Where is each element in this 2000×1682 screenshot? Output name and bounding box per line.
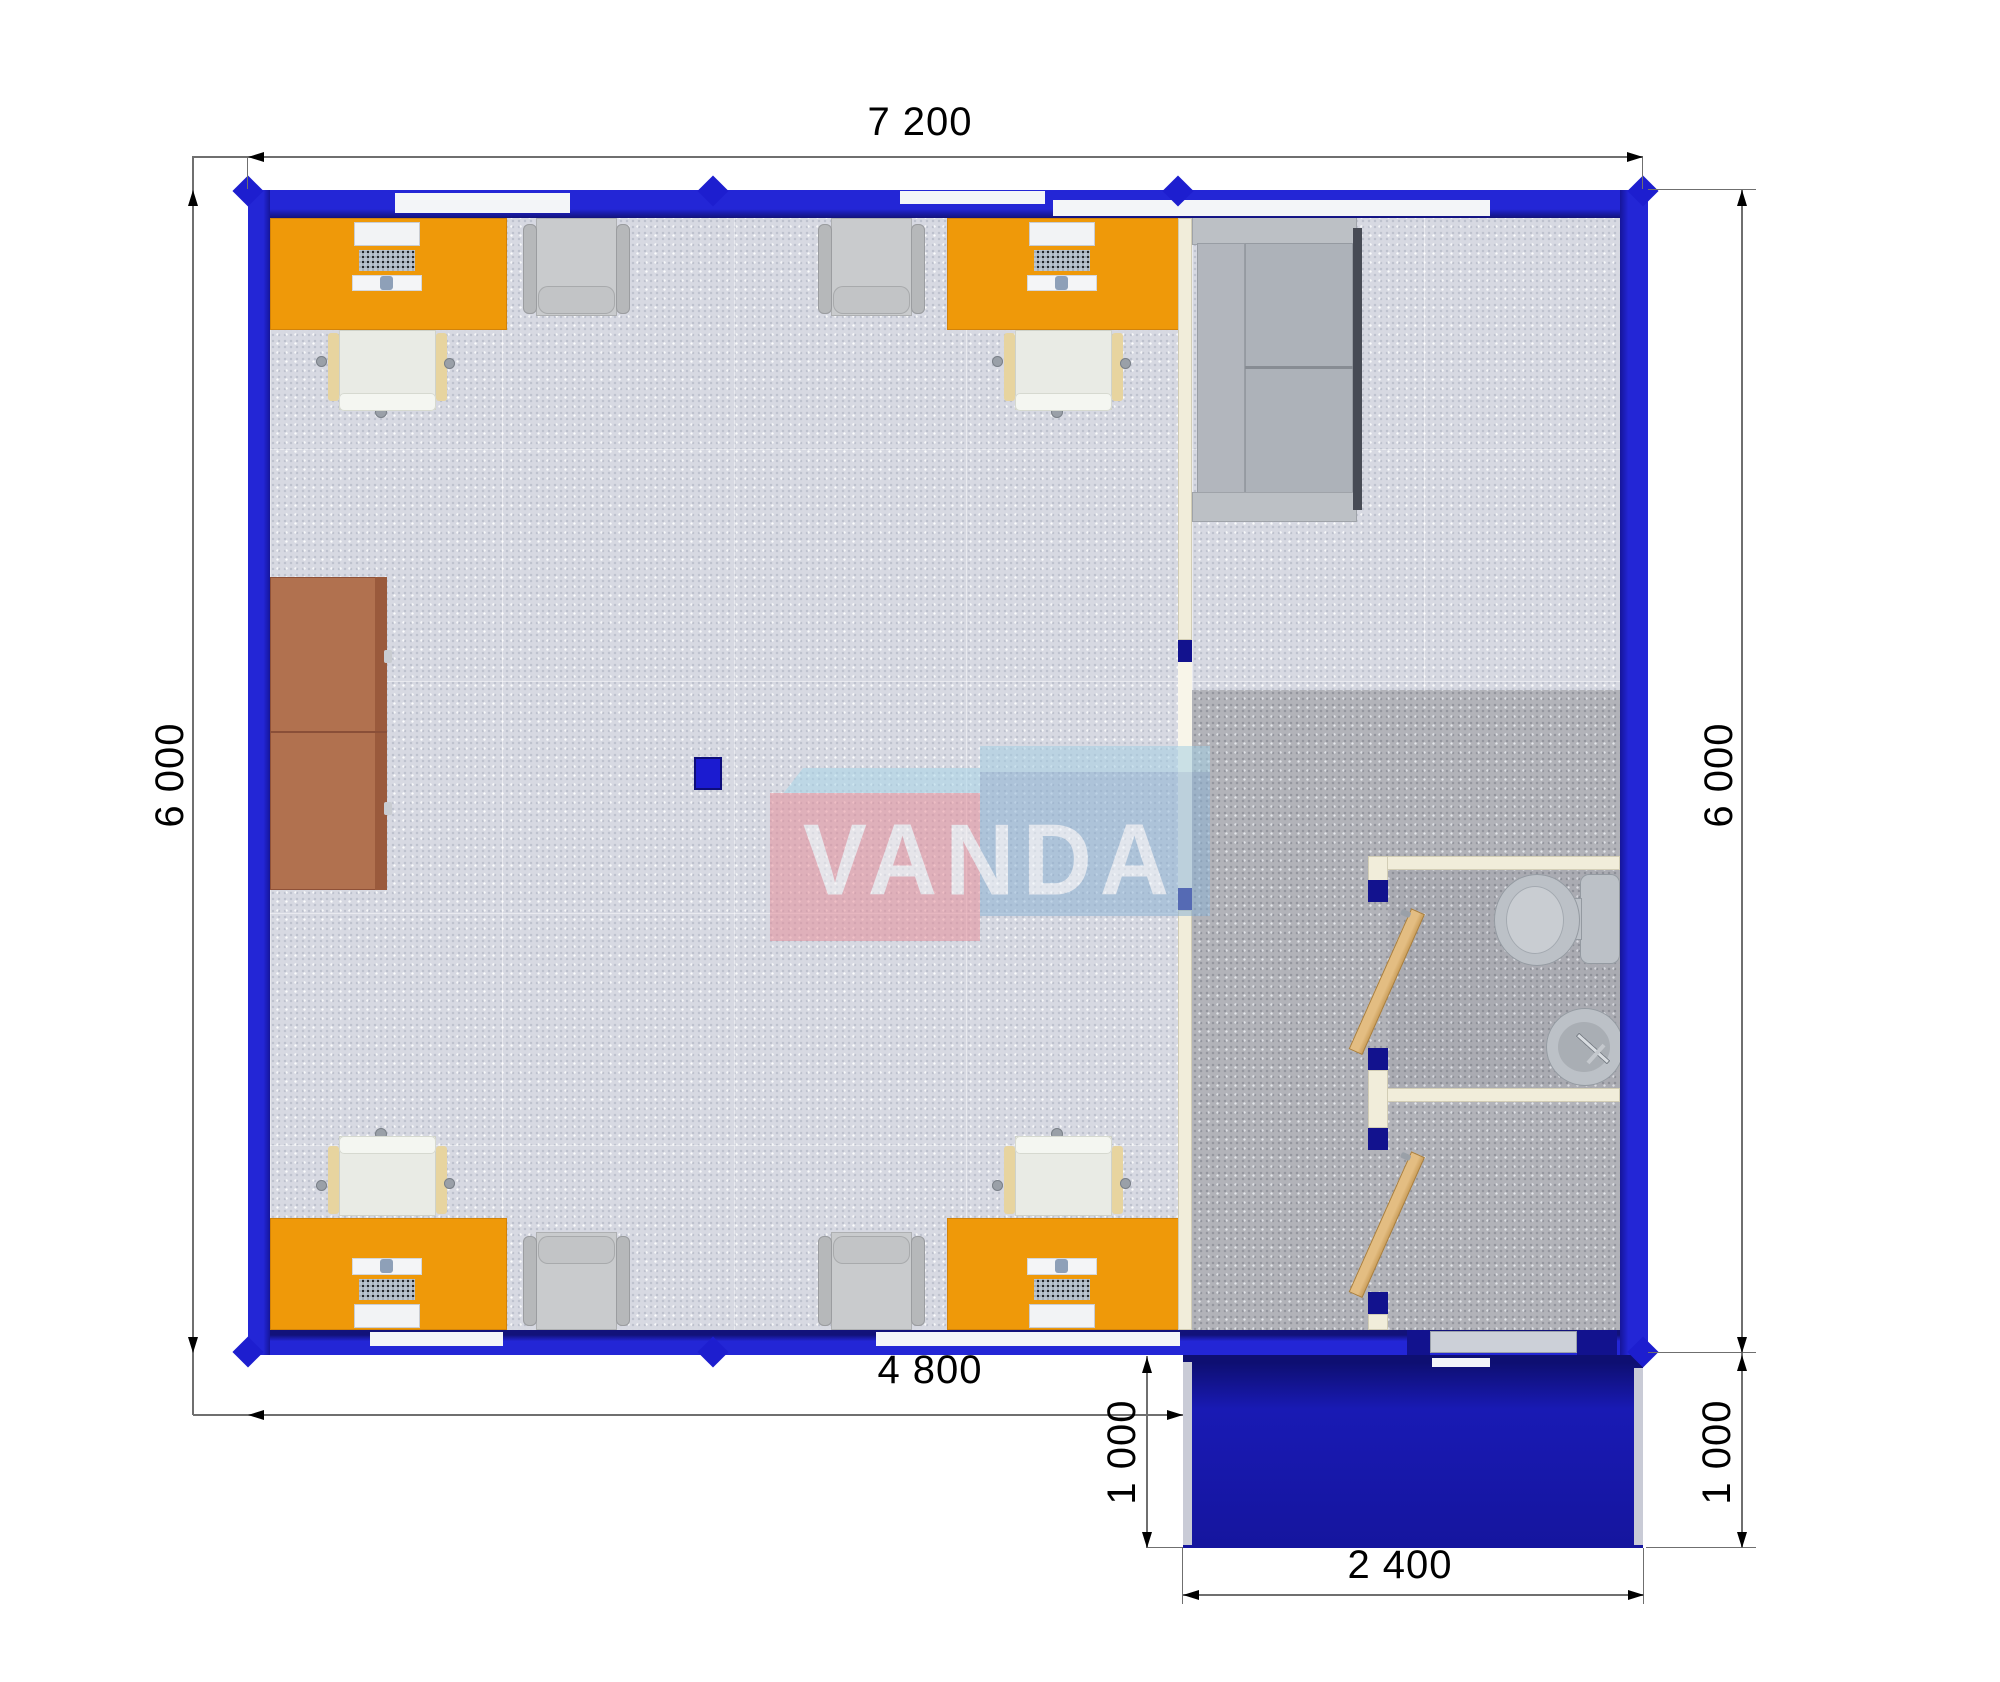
dimension-arrow-icon	[248, 1410, 264, 1420]
logo-top-face	[783, 768, 1003, 794]
office-chair-backrest	[1015, 1136, 1112, 1154]
computer-monitor	[354, 1304, 420, 1328]
office-chair-frame	[1004, 333, 1015, 401]
partition-wall	[1178, 218, 1192, 640]
dimension-arrow-icon	[248, 152, 264, 162]
computer-keyboard	[1031, 1276, 1093, 1303]
armchair-armrest	[818, 224, 832, 314]
sofa-armrest	[1192, 215, 1357, 245]
vestibule-door-post	[1368, 1128, 1388, 1150]
partition-wall	[1178, 910, 1192, 1330]
dimension-arrow-icon	[1627, 152, 1643, 162]
exterior-wall-left	[248, 190, 270, 1355]
cabinet-divider	[270, 731, 387, 733]
office-chair-backrest	[1015, 393, 1112, 411]
computer-mouse	[380, 276, 393, 290]
computer-keyboard	[356, 247, 418, 274]
porch-step-mark	[1432, 1358, 1490, 1367]
floor-marker	[694, 757, 722, 790]
cabinet-edge	[375, 577, 387, 890]
dimension-arrow-icon	[188, 190, 198, 206]
armchair-armrest	[523, 1236, 537, 1326]
computer-keyboard	[356, 1276, 418, 1303]
office-chair-frame	[328, 333, 339, 401]
chair-caster	[992, 356, 1003, 367]
porch-edge	[1183, 1362, 1192, 1545]
vestibule-left-wall	[1368, 1314, 1388, 1330]
porch-platform	[1183, 1355, 1643, 1548]
office-chair-backrest	[339, 1136, 436, 1154]
window	[1053, 200, 1490, 216]
armchair-armrest	[616, 224, 630, 314]
sofa-armrest	[1192, 492, 1357, 522]
dimension-porch-width: 2 400	[1250, 1543, 1550, 1587]
dimension-line-porch-bottom	[1182, 1594, 1644, 1596]
armchair-armrest	[523, 224, 537, 314]
dimension-porch-depth-right: 1 000	[1695, 1352, 1739, 1552]
office-chair-backrest	[339, 393, 436, 411]
armchair-armrest	[818, 1236, 832, 1326]
porch-edge	[1634, 1368, 1643, 1545]
armchair-armrest	[911, 224, 925, 314]
sofa-shadow-edge	[1353, 228, 1362, 510]
bathroom-door-post	[1368, 880, 1388, 902]
armchair-armrest	[911, 1236, 925, 1326]
dimension-arrow-icon	[1737, 190, 1747, 206]
dimension-line-bottom	[193, 1414, 1183, 1416]
computer-keyboard	[1031, 247, 1093, 274]
cabinet-handle	[384, 650, 392, 663]
office-chair-frame	[328, 1146, 339, 1214]
computer-mouse	[1055, 1259, 1068, 1273]
sofa-backrest	[1197, 243, 1245, 493]
dimension-right-height: 6 000	[1697, 675, 1741, 875]
computer-mouse	[1055, 276, 1068, 290]
watermark-text: VANDA	[765, 803, 1215, 919]
chair-caster	[1120, 1178, 1131, 1189]
dimension-porch-depth-left: 1 000	[1100, 1352, 1144, 1552]
chair-caster	[316, 356, 327, 367]
logo-blue-top-face	[980, 746, 1210, 772]
dimension-arrow-icon	[1183, 1590, 1199, 1600]
armchair-cushion	[833, 1236, 910, 1264]
chair-caster	[992, 1180, 1003, 1191]
partition-door-post	[1178, 640, 1192, 662]
dimension-arrow-icon	[1737, 1337, 1747, 1353]
window	[370, 1332, 503, 1346]
dimension-line-top	[193, 156, 1643, 158]
chair-caster	[1120, 358, 1131, 369]
chair-caster	[444, 358, 455, 369]
toilet-tank	[1580, 874, 1620, 964]
vestibule-door-post	[1368, 1292, 1388, 1314]
bathroom-mid-wall	[1368, 1088, 1620, 1102]
armchair-cushion	[538, 1236, 615, 1264]
dimension-line-left	[192, 156, 194, 1415]
chair-caster	[316, 1180, 327, 1191]
armchair-cushion	[538, 286, 615, 314]
dimension-interior-bottom-width: 4 800	[780, 1348, 1080, 1392]
dimension-arrow-icon	[1167, 1410, 1183, 1420]
armchair-armrest	[616, 1236, 630, 1326]
dimension-arrow-icon	[1628, 1590, 1644, 1600]
dimension-top-width: 7 200	[770, 100, 1070, 144]
computer-monitor	[354, 222, 420, 246]
dimension-left-height: 6 000	[148, 675, 192, 875]
dimension-arrow-icon	[188, 1337, 198, 1353]
dimension-line-porch-left	[1146, 1356, 1148, 1548]
window	[876, 1332, 1180, 1346]
office-chair-frame	[1004, 1146, 1015, 1214]
watermark-logo: VANDA	[765, 738, 1215, 953]
computer-monitor	[1029, 1304, 1095, 1328]
window	[395, 193, 570, 213]
computer-mouse	[380, 1259, 393, 1273]
bathroom-top-wall	[1368, 856, 1620, 870]
entrance-door	[1430, 1331, 1577, 1353]
chair-caster	[444, 1178, 455, 1189]
armchair-cushion	[833, 286, 910, 314]
exterior-wall-right	[1620, 190, 1648, 1355]
window	[900, 191, 1045, 204]
entrance-door-post	[1577, 1330, 1617, 1355]
cabinet-handle	[384, 802, 392, 815]
toilet-seat	[1506, 886, 1564, 954]
computer-monitor	[1029, 222, 1095, 246]
sofa-seat-divider	[1245, 366, 1353, 369]
cabinet	[270, 577, 387, 890]
bathroom-door-post	[1368, 1048, 1388, 1070]
bathroom-left-wall	[1368, 1070, 1388, 1128]
floor-plan: VANDA 7 200 6 000 6 000 1 000	[0, 0, 2000, 1682]
entrance-door-post	[1407, 1330, 1430, 1355]
